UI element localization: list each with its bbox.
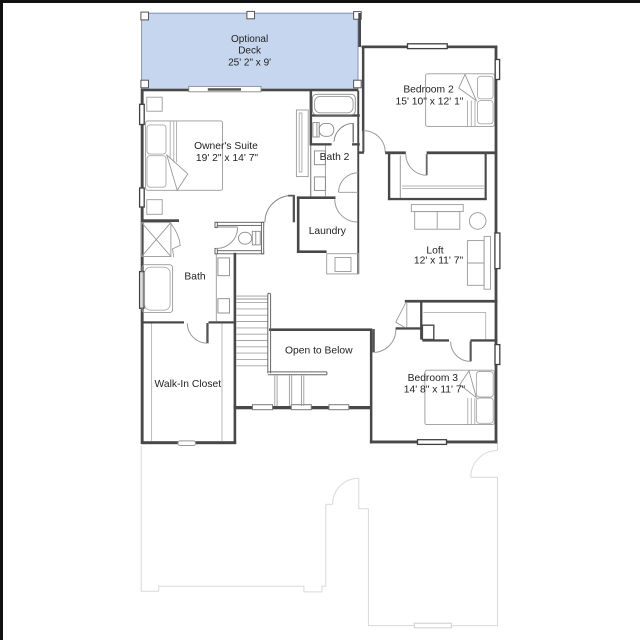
svg-text:14' 8" x 11' 7": 14' 8" x 11' 7" [404,384,466,395]
svg-text:Laundry: Laundry [309,226,347,237]
svg-text:Open to Below: Open to Below [285,345,353,356]
svg-text:Bath 2: Bath 2 [320,152,350,163]
svg-text:15' 10" x 12' 1": 15' 10" x 12' 1" [396,96,464,107]
svg-text:12' x 11' 7": 12' x 11' 7" [414,256,464,267]
svg-text:19' 2" x 14' 7": 19' 2" x 14' 7" [196,153,259,164]
svg-text:25' 2" x 9': 25' 2" x 9' [228,58,271,69]
svg-text:Deck: Deck [238,46,262,57]
svg-text:Bedroom 2: Bedroom 2 [403,85,454,96]
svg-text:Walk-In Closet: Walk-In Closet [155,379,222,390]
svg-text:Owner's Suite: Owner's Suite [194,141,258,152]
svg-text:Bedroom 3: Bedroom 3 [408,373,459,384]
svg-text:Bath: Bath [184,272,205,283]
svg-text:Optional: Optional [231,34,268,45]
